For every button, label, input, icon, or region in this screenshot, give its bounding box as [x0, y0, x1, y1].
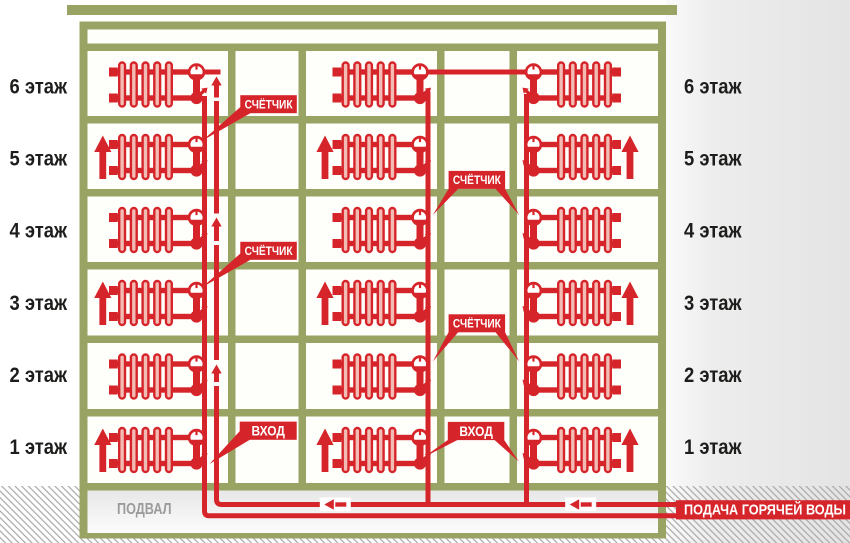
svg-text:ВХОД: ВХОД [459, 424, 493, 439]
svg-text:1 этаж: 1 этаж [10, 435, 68, 459]
svg-text:СЧЁТЧИК: СЧЁТЧИК [453, 174, 502, 187]
svg-text:2 этаж: 2 этаж [684, 363, 742, 387]
svg-text:5 этаж: 5 этаж [684, 146, 742, 170]
svg-text:5 этаж: 5 этаж [10, 146, 68, 170]
svg-text:ВХОД: ВХОД [251, 424, 285, 439]
svg-text:1 этаж: 1 этаж [684, 435, 742, 459]
svg-text:ПОДВАЛ: ПОДВАЛ [117, 501, 172, 518]
svg-text:3 этаж: 3 этаж [684, 291, 742, 315]
svg-text:СЧЁТЧИК: СЧЁТЧИК [245, 245, 294, 258]
svg-text:6 этаж: 6 этаж [10, 74, 68, 98]
svg-text:2 этаж: 2 этаж [10, 363, 68, 387]
svg-text:ПОДАЧА ГОРЯЧЕЙ ВОДЫ: ПОДАЧА ГОРЯЧЕЙ ВОДЫ [684, 501, 846, 519]
svg-text:СЧЁТЧИК: СЧЁТЧИК [453, 317, 502, 330]
svg-text:4 этаж: 4 этаж [684, 219, 742, 243]
svg-text:СЧЁТЧИК: СЧЁТЧИК [245, 98, 294, 111]
svg-text:6 этаж: 6 этаж [684, 74, 742, 98]
svg-text:3 этаж: 3 этаж [10, 291, 68, 315]
svg-text:4 этаж: 4 этаж [10, 219, 68, 243]
